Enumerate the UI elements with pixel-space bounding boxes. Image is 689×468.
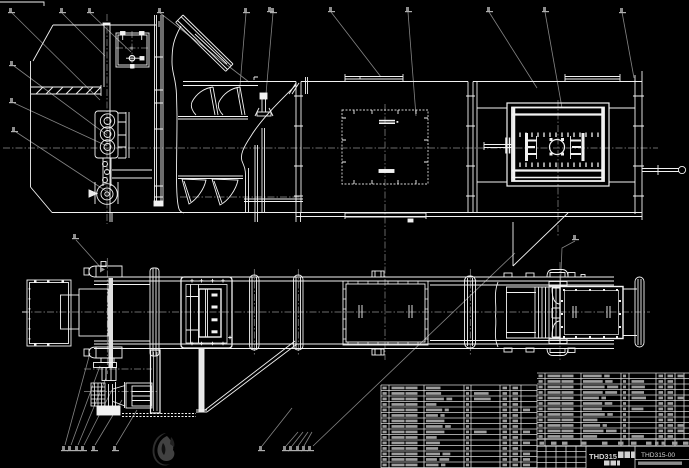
svg-text:THD315-00: THD315-00 [641,452,675,459]
svg-text:THD315: THD315 [589,452,618,461]
